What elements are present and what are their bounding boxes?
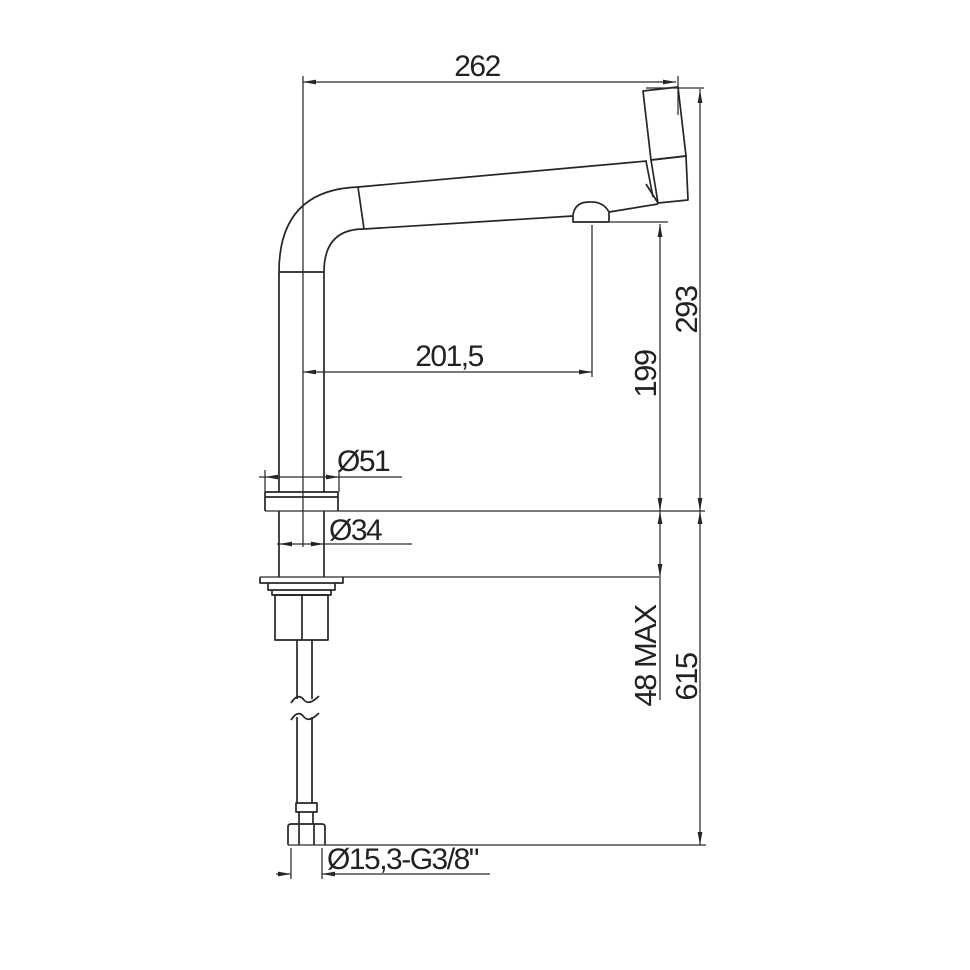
hose-collar <box>296 803 317 812</box>
dim-hose-drop-label: 615 <box>669 653 704 700</box>
aerator-dome-skirt <box>573 212 609 222</box>
dim-base-diameter: Ø51 <box>259 445 402 492</box>
dim-top-width-label: 262 <box>454 50 500 83</box>
arrowhead <box>658 498 663 511</box>
dim-hose-drop: 615 <box>669 511 704 845</box>
faucet-outline <box>260 87 706 845</box>
dim-body-diameter: Ø34 <box>277 514 412 547</box>
arrowhead <box>658 564 663 577</box>
spout-top-edge <box>358 161 647 187</box>
arrowhead <box>698 511 703 524</box>
arrowhead <box>278 872 291 877</box>
arrowhead <box>279 542 292 547</box>
cartridge-body <box>651 156 688 203</box>
dim-hose-thread: Ø15,3-G3/8" <box>276 843 490 879</box>
dim-spout-reach-label: 201,5 <box>415 340 483 373</box>
dim-spout-reach: 201,5 <box>303 225 592 377</box>
dim-deck-thickness-label: 48 MAX <box>628 604 663 707</box>
hose-break-squiggle-top <box>291 696 319 703</box>
dim-outlet-height-label: 199 <box>628 350 663 397</box>
arrowhead <box>303 80 316 85</box>
elbow-inner-bend <box>324 229 364 272</box>
hose-break-squiggle-bottom <box>291 713 319 720</box>
lever-handle <box>643 87 686 160</box>
dim-hose-thread-label: Ø15,3-G3/8" <box>327 843 479 876</box>
arrowhead <box>698 90 703 103</box>
arrowhead <box>698 498 703 511</box>
arrowhead <box>698 832 703 845</box>
spout-bottom-edge-right <box>609 204 658 212</box>
arrowhead <box>579 370 592 375</box>
dim-height-above-deck-label: 293 <box>669 286 704 333</box>
dimensions: 262 201,5 199 48 MAX <box>259 50 704 879</box>
arrowhead <box>265 475 278 480</box>
arrowhead <box>303 370 316 375</box>
dim-base-diameter-label: Ø51 <box>337 445 390 478</box>
hose-hex-fitting <box>288 824 325 845</box>
dim-body-diameter-label: Ø34 <box>329 514 382 547</box>
spout-weld-line <box>358 187 364 229</box>
arrowhead <box>658 511 663 524</box>
fixing-plate <box>260 577 343 583</box>
arrowhead <box>311 542 324 547</box>
arrowhead <box>663 80 676 85</box>
dim-deck-thickness: 48 MAX <box>628 511 663 707</box>
drawing-canvas: 262 201,5 199 48 MAX <box>0 0 970 970</box>
elbow-outer-bend <box>279 187 358 272</box>
aerator-dome-arc <box>573 202 609 215</box>
spout-bottom-edge-left <box>364 216 573 229</box>
faucet-dimension-drawing: 262 201,5 199 48 MAX <box>0 0 970 970</box>
fixing-washer <box>268 583 335 590</box>
arrowhead <box>658 224 663 237</box>
